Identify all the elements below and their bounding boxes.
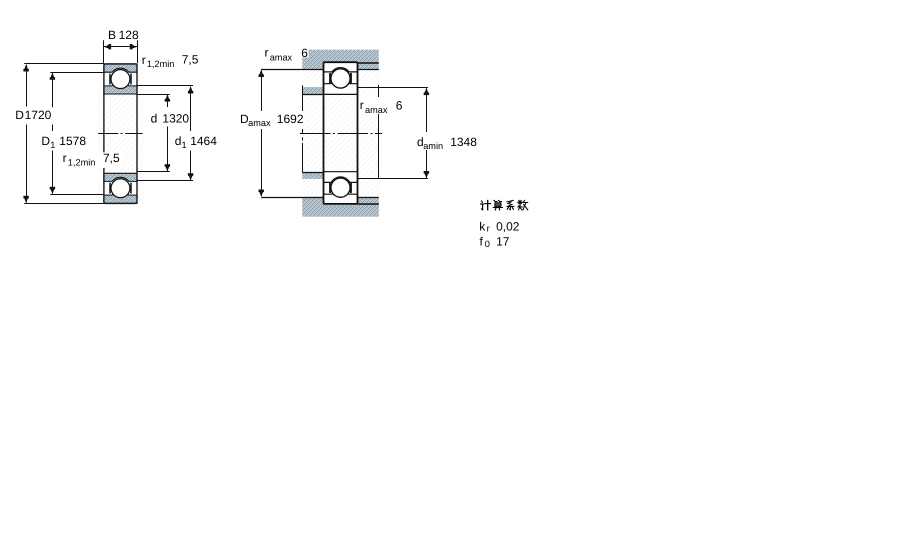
svg-text:1348: 1348: [450, 135, 477, 149]
svg-text:6: 6: [396, 98, 403, 112]
svg-text:k: k: [479, 219, 486, 233]
svg-text:amax: amax: [248, 118, 271, 128]
svg-text:amin: amin: [423, 141, 443, 151]
svg-text:1320: 1320: [162, 112, 189, 126]
svg-text:1: 1: [50, 140, 55, 150]
svg-text:d: d: [175, 134, 182, 148]
svg-text:128: 128: [119, 28, 139, 42]
svg-text:17: 17: [496, 235, 510, 249]
svg-text:r: r: [265, 46, 269, 60]
svg-text:D: D: [15, 108, 24, 122]
svg-text:0,02: 0,02: [496, 219, 520, 233]
svg-text:amax: amax: [365, 105, 388, 115]
svg-text:1720: 1720: [25, 108, 52, 122]
svg-text:7,5: 7,5: [182, 53, 199, 67]
svg-text:1: 1: [182, 140, 187, 150]
svg-text:1,2min: 1,2min: [68, 158, 96, 168]
svg-text:d: d: [151, 112, 158, 126]
svg-text:B: B: [108, 28, 116, 42]
svg-text:amax: amax: [270, 53, 293, 63]
svg-text:r: r: [360, 98, 364, 112]
svg-text:r: r: [142, 53, 146, 67]
svg-text:D: D: [41, 134, 50, 148]
svg-text:7,5: 7,5: [103, 151, 120, 165]
svg-text:1464: 1464: [190, 134, 217, 148]
svg-text:6: 6: [301, 46, 308, 60]
svg-text:1578: 1578: [59, 134, 86, 148]
svg-text:1,2min: 1,2min: [147, 59, 175, 69]
svg-text:1692: 1692: [277, 112, 304, 126]
svg-text:0: 0: [485, 239, 490, 249]
svg-text:r: r: [487, 224, 490, 234]
svg-text:r: r: [63, 151, 67, 165]
